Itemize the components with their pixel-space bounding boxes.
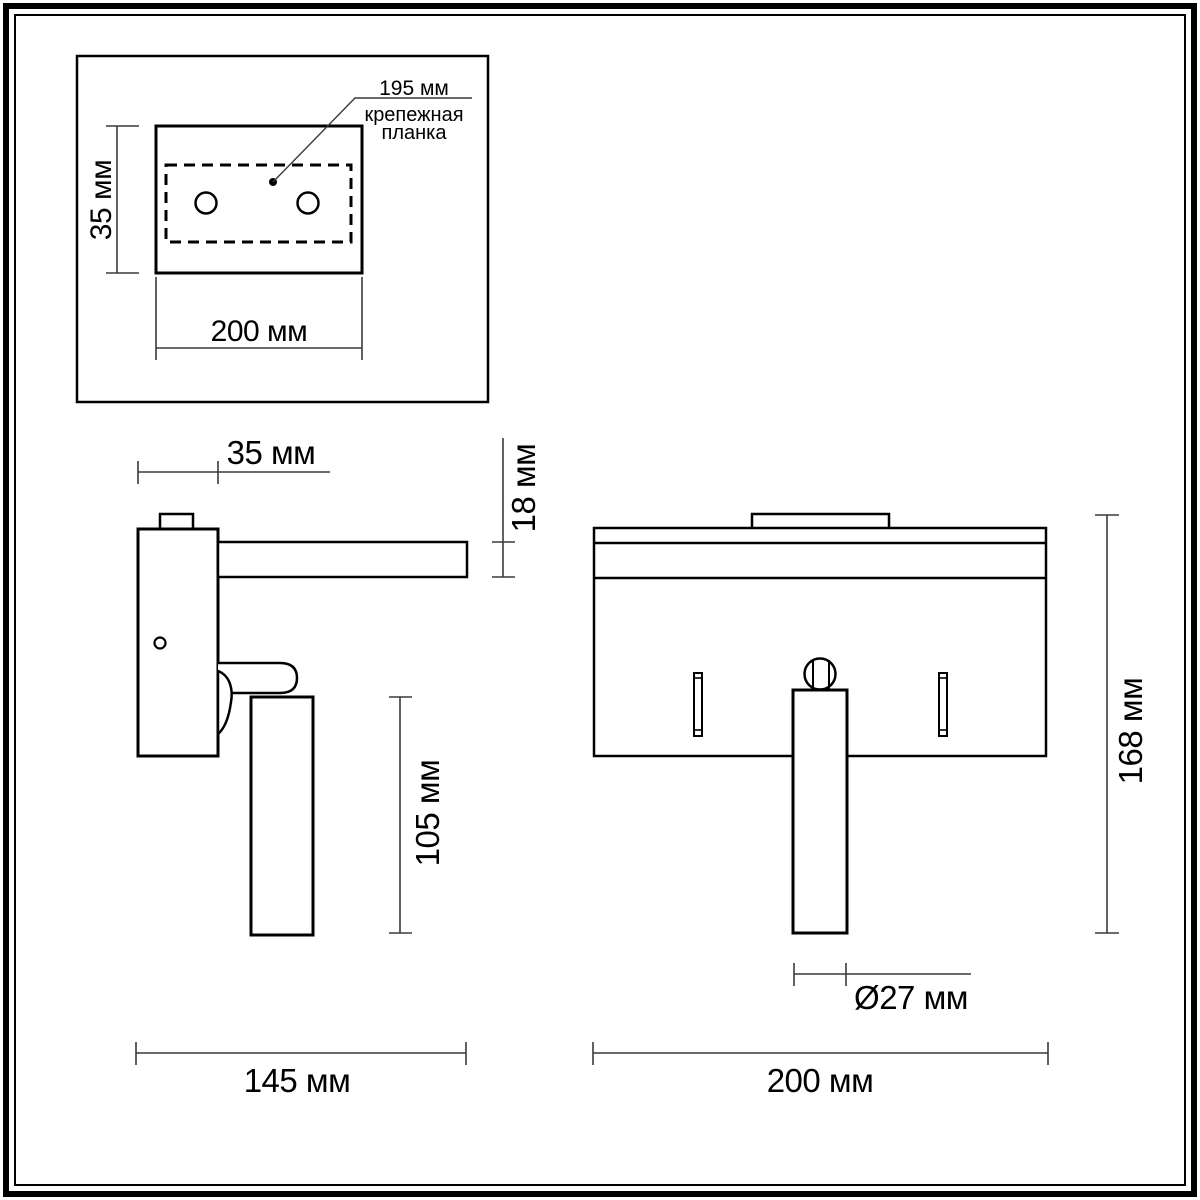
plate-height-label: 35 мм bbox=[85, 160, 118, 240]
side-view: 35 мм 18 мм 105 мм 145 мм bbox=[136, 434, 542, 1099]
front-view: 168 мм Ø27 мм 200 мм bbox=[593, 514, 1149, 1099]
side-top-tab bbox=[160, 514, 193, 529]
technical-drawing-page: 195 мм крепежная планка 35 мм 200 мм bbox=[0, 0, 1200, 1200]
body-depth-label: 35 мм bbox=[227, 434, 316, 471]
front-led-slot-left bbox=[694, 673, 702, 736]
front-led-slot-right bbox=[939, 673, 947, 736]
side-shelf bbox=[218, 542, 467, 577]
mount-hole-left bbox=[196, 193, 217, 214]
front-reading-tube bbox=[793, 690, 847, 933]
plate-width-label: 200 мм bbox=[211, 315, 308, 348]
mount-spacing-label: 195 мм bbox=[379, 77, 449, 100]
side-screw-dot bbox=[155, 638, 166, 649]
mounting-plate-outline bbox=[156, 126, 362, 273]
mount-hole-right bbox=[298, 193, 319, 214]
mount-plate-label-line2: планка bbox=[382, 122, 448, 144]
front-pivot-knuckle bbox=[805, 659, 836, 691]
total-width-label: 200 мм bbox=[767, 1062, 874, 1099]
shelf-thickness-label: 18 мм bbox=[505, 444, 542, 533]
total-depth-label: 145 мм bbox=[244, 1062, 351, 1099]
side-reading-tube bbox=[251, 697, 313, 935]
wall-lamp-dimension-drawing: 195 мм крепежная планка 35 мм 200 мм bbox=[0, 0, 1200, 1200]
tube-length-label: 105 мм bbox=[409, 760, 446, 867]
top-view-inset: 195 мм крепежная планка 35 мм 200 мм bbox=[77, 56, 488, 402]
tube-diameter-label: Ø27 мм bbox=[854, 979, 968, 1016]
total-height-label: 168 мм bbox=[1112, 678, 1149, 785]
side-wall-body bbox=[138, 529, 218, 756]
side-switch-lever bbox=[218, 671, 232, 734]
